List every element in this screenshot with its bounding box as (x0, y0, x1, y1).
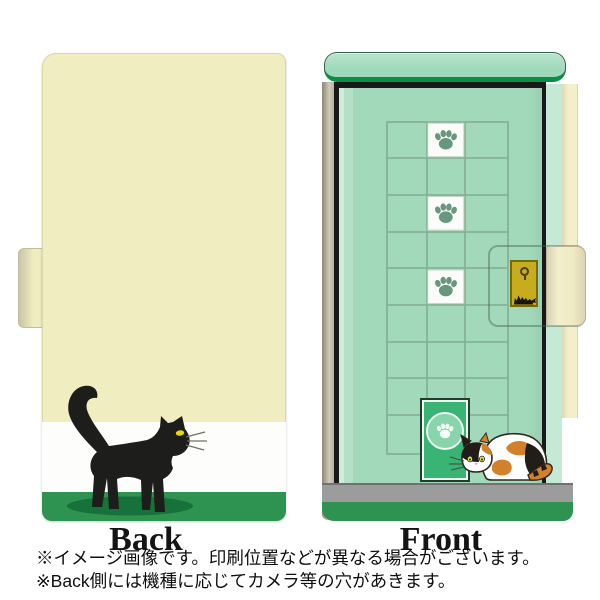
product-image: Back Front ※イメージ画像です。印刷位置などが異なる場合がございます。… (0, 0, 600, 600)
clasp-buckle (510, 260, 538, 307)
pupil-right (481, 459, 483, 461)
keyhole-icon (520, 267, 529, 276)
cat-shadow (67, 497, 193, 516)
front-flap-shadow (334, 82, 546, 88)
front-cover (318, 52, 590, 522)
calico-cat-illustration (448, 430, 555, 484)
disclaimer-notes: ※イメージ画像です。印刷位置などが異なる場合がございます。 ※Back側には機種… (36, 547, 596, 593)
back-clasp-tab (18, 248, 45, 328)
calico-right-ear (480, 433, 489, 443)
pupil-left (469, 459, 471, 461)
back-cover (42, 53, 286, 521)
black-cat-illustration (61, 380, 211, 521)
front-green-stripe (322, 502, 573, 521)
front-top-flap (324, 52, 566, 82)
calico-belly-patch (492, 460, 512, 476)
floor-stripe (322, 483, 573, 502)
cat-silhouette-icon (513, 290, 537, 306)
note-line-2: ※Back側には機種に応じてカメラ等の穴があきます。 (36, 570, 596, 593)
cat-whiskers (186, 432, 207, 450)
clasp-strap-end (546, 246, 586, 326)
front-spine-edge (322, 82, 334, 520)
paw-window-3 (428, 270, 464, 304)
paw-window-1 (428, 123, 464, 157)
paw-window-2 (428, 197, 464, 231)
note-line-1: ※イメージ画像です。印刷位置などが異なる場合がございます。 (36, 547, 596, 570)
black-cat-silhouette (68, 386, 189, 512)
